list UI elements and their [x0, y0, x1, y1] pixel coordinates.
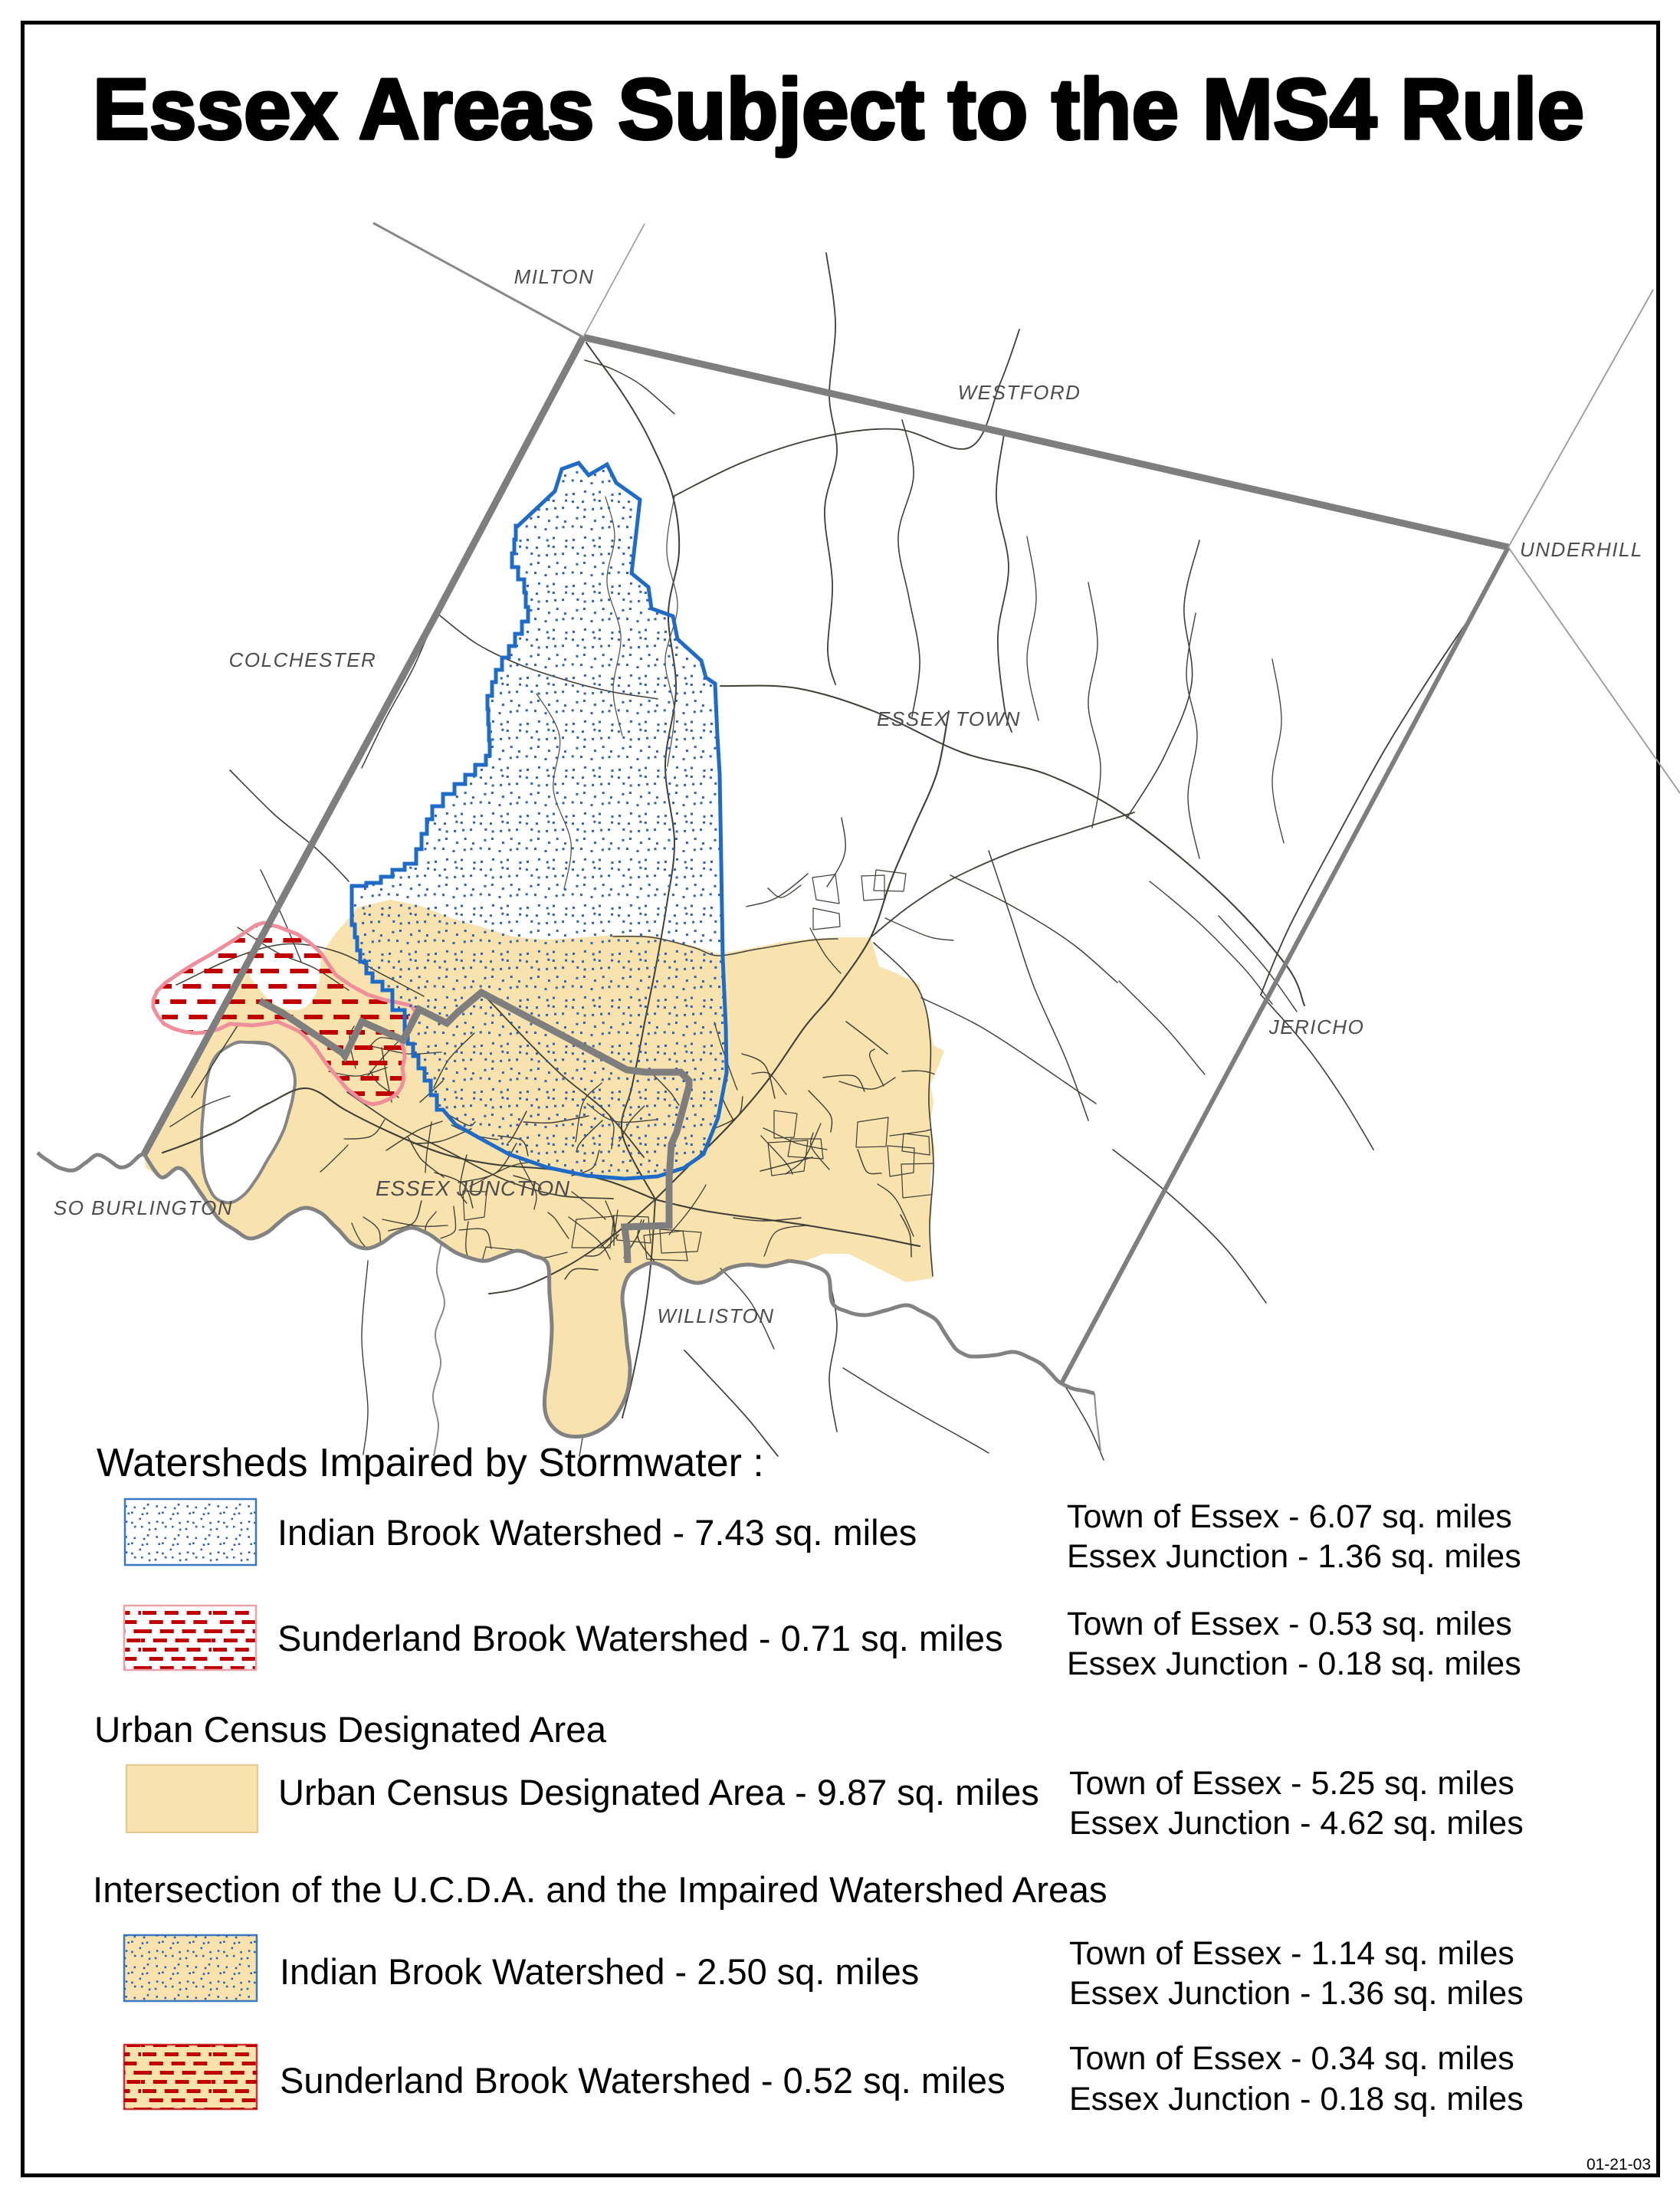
svg-text:Essex Junction - 0.18 sq. mile: Essex Junction - 0.18 sq. miles	[1069, 2081, 1524, 2118]
svg-text:Essex Junction - 4.62 sq. mile: Essex Junction - 4.62 sq. miles	[1069, 1805, 1524, 1842]
svg-text:Sunderland Brook Watershed - 0: Sunderland Brook Watershed - 0.71 sq. mi…	[277, 1618, 1003, 1658]
svg-text:Town of Essex - 1.14 sq. miles: Town of Essex - 1.14 sq. miles	[1069, 1935, 1514, 1972]
svg-text:01-21-03: 01-21-03	[1586, 2156, 1651, 2173]
svg-text:UNDERHILL: UNDERHILL	[1520, 538, 1643, 561]
svg-text:JERICHO: JERICHO	[1268, 1015, 1365, 1038]
svg-text:Indian Brook Watershed - 2.50: Indian Brook Watershed - 2.50 sq. miles	[280, 1951, 919, 1992]
svg-text:MILTON: MILTON	[514, 265, 595, 288]
svg-text:SO BURLINGTON: SO BURLINGTON	[54, 1196, 233, 1219]
svg-text:Essex Junction - 1.36 sq. mile: Essex Junction - 1.36 sq. miles	[1069, 1975, 1524, 2012]
svg-text:WILLISTON: WILLISTON	[657, 1304, 774, 1327]
svg-text:ESSEX JUNCTION: ESSEX JUNCTION	[376, 1176, 570, 1200]
svg-text:Town of Essex - 6.07 sq. miles: Town of Essex - 6.07 sq. miles	[1067, 1498, 1512, 1535]
svg-text:Watersheds Impaired by Stormwa: Watersheds Impaired by Stormwater :	[97, 1441, 764, 1485]
svg-text:Essex Areas Subject to the MS4: Essex Areas Subject to the MS4 Rule	[93, 61, 1584, 157]
svg-text:Intersection of the U.C.D.A. a: Intersection of the U.C.D.A. and the Imp…	[93, 1870, 1107, 1911]
svg-text:WESTFORD: WESTFORD	[958, 381, 1081, 404]
svg-text:COLCHESTER: COLCHESTER	[229, 648, 377, 671]
svg-text:ESSEX TOWN: ESSEX TOWN	[877, 707, 1021, 730]
svg-text:Essex Junction - 0.18 sq. mile: Essex Junction - 0.18 sq. miles	[1067, 1645, 1521, 1682]
svg-text:Town of Essex - 0.53 sq. miles: Town of Essex - 0.53 sq. miles	[1067, 1606, 1512, 1642]
svg-text:Town of Essex - 5.25 sq. miles: Town of Essex - 5.25 sq. miles	[1069, 1765, 1514, 1802]
svg-text:Indian Brook Watershed - 7.43: Indian Brook Watershed - 7.43 sq. miles	[277, 1512, 917, 1553]
svg-text:Sunderland Brook Watershed - 0: Sunderland Brook Watershed - 0.52 sq. mi…	[280, 2060, 1006, 2101]
svg-text:Urban Census Designated Area: Urban Census Designated Area	[94, 1710, 607, 1750]
svg-text:Town of Essex - 0.34 sq. miles: Town of Essex - 0.34 sq. miles	[1069, 2040, 1514, 2077]
svg-text:Essex Junction - 1.36 sq. mile: Essex Junction - 1.36 sq. miles	[1067, 1538, 1521, 1575]
svg-text:Urban Census Designated Area -: Urban Census Designated Area - 9.87 sq. …	[278, 1772, 1039, 1813]
